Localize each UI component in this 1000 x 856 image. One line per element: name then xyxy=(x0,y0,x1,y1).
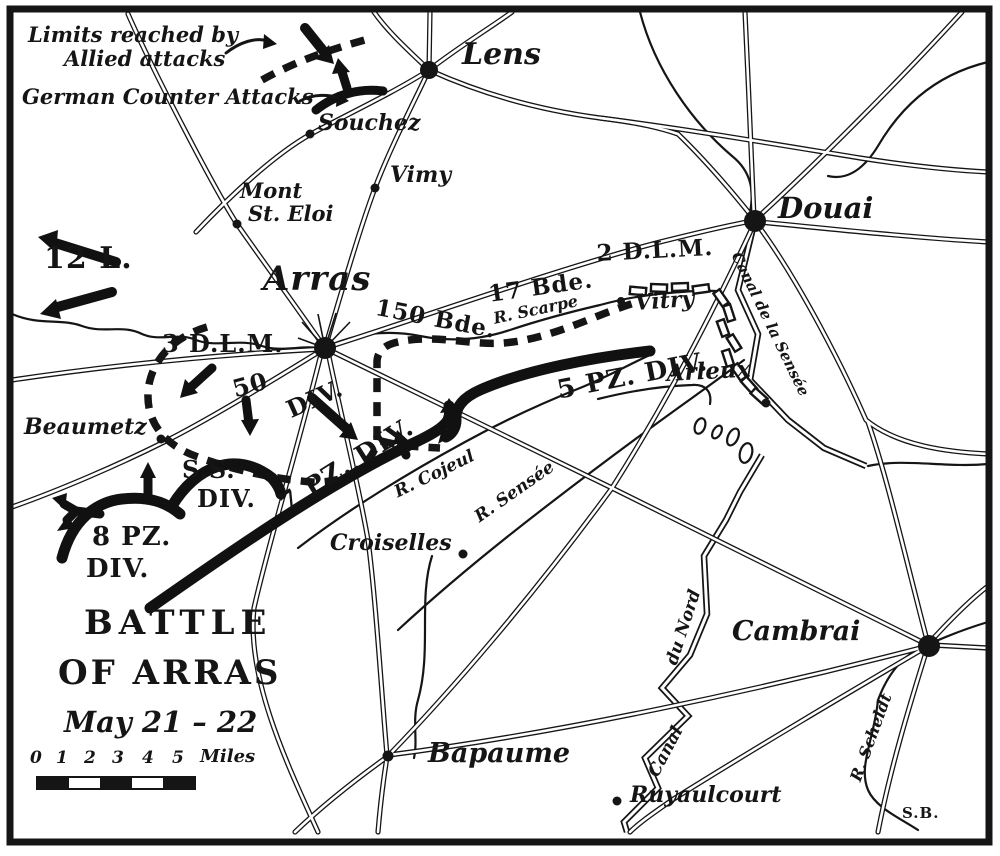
dot-arras xyxy=(314,337,336,359)
scale-tick-2: 2 xyxy=(84,750,96,767)
dot-souchez xyxy=(306,130,315,139)
label-12L: 12 L. xyxy=(44,244,133,274)
map-title-line2: OF ARRAS xyxy=(58,656,281,690)
dot-croiselles xyxy=(459,550,468,559)
label-cambrai: Cambrai xyxy=(732,618,860,645)
map-date: May 21 – 22 xyxy=(64,708,257,737)
label-8pz-line1: 8 PZ. xyxy=(92,524,171,550)
dot-cambrai xyxy=(918,635,940,657)
label-ss-line2: DIV. xyxy=(197,487,256,511)
town-dots xyxy=(157,61,941,806)
scale-tick-5: 5 xyxy=(172,750,184,767)
label-douai: Douai xyxy=(778,194,873,223)
label-arras: Arras xyxy=(263,262,371,296)
arrow-12L-lower xyxy=(54,292,112,308)
scale-tick-4: 4 xyxy=(142,750,154,767)
dot-bapaume xyxy=(383,751,394,762)
label-3dlm: 3 D.L.M. xyxy=(162,332,284,356)
arrow-lens-south xyxy=(305,28,325,53)
arrow-souchez-north xyxy=(342,72,347,88)
dot-lens xyxy=(420,61,438,79)
dot-vimy xyxy=(371,184,380,193)
arrow-50div-west xyxy=(190,368,212,388)
dot-douai xyxy=(744,210,766,232)
dot-arleux xyxy=(762,399,771,408)
label-mont: Mont xyxy=(240,180,302,201)
scale-unit: Miles xyxy=(200,748,255,766)
label-souchez: Souchez xyxy=(318,112,420,134)
dot-mont-st-eloi xyxy=(233,220,242,229)
legend-allied-line2: Allied attacks xyxy=(64,48,225,69)
label-ss-line1: S.S. xyxy=(182,458,236,482)
label-credit: S.B. xyxy=(902,806,939,821)
label-8pz-line2: DIV. xyxy=(86,556,149,582)
label-2dlm: 2 D.L.M. xyxy=(596,236,714,265)
map-title-line1: BATTLE xyxy=(84,606,272,640)
scale-tick-3: 3 xyxy=(112,750,124,767)
battle-of-arras-map: Limits reached by Allied attacks German … xyxy=(0,0,1000,856)
label-vimy: Vimy xyxy=(390,164,451,186)
label-vitry: Vitry xyxy=(634,288,695,314)
label-bapaume: Bapaume xyxy=(428,740,570,767)
label-st-eloi: St. Eloi xyxy=(248,203,333,224)
label-lens: Lens xyxy=(462,40,541,70)
label-beaumetz: Beaumetz xyxy=(24,416,147,438)
dot-ruyaulcourt xyxy=(613,797,622,806)
label-croiselles: Croiselles xyxy=(330,532,452,554)
legend-german: German Counter Attacks xyxy=(22,86,314,107)
legend-allied-line1: Limits reached by xyxy=(28,24,238,45)
scale-tick-1: 1 xyxy=(56,750,68,767)
label-ruyaulcourt: Ruyaulcourt xyxy=(630,784,782,806)
scale-tick-0: 0 xyxy=(30,750,42,767)
scale-bar xyxy=(36,776,196,790)
